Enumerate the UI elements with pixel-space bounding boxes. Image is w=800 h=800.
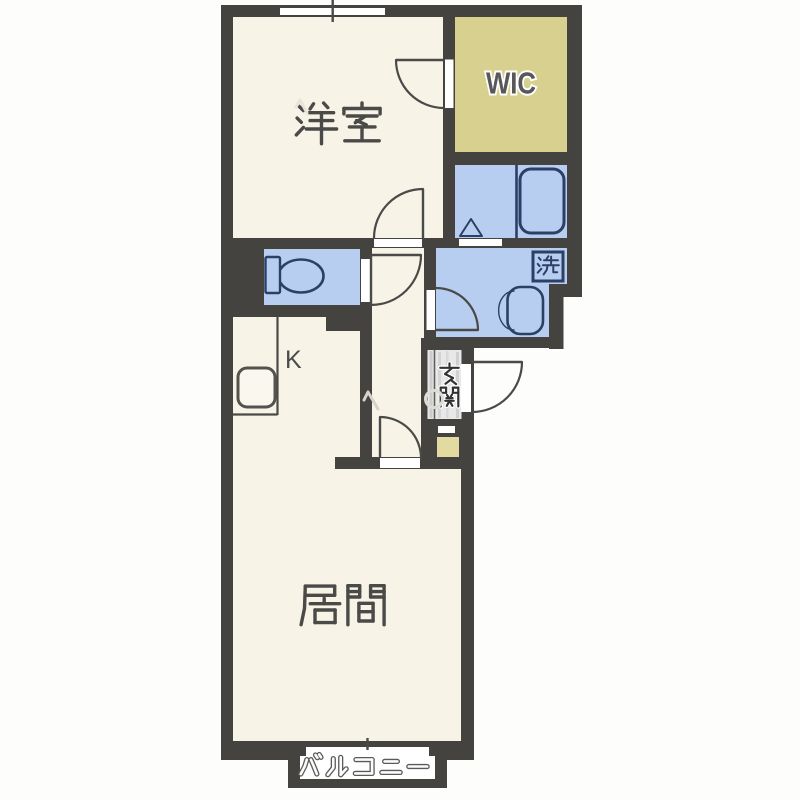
svg-text:K: K (285, 346, 302, 374)
svg-text:WIC: WIC (486, 66, 536, 101)
